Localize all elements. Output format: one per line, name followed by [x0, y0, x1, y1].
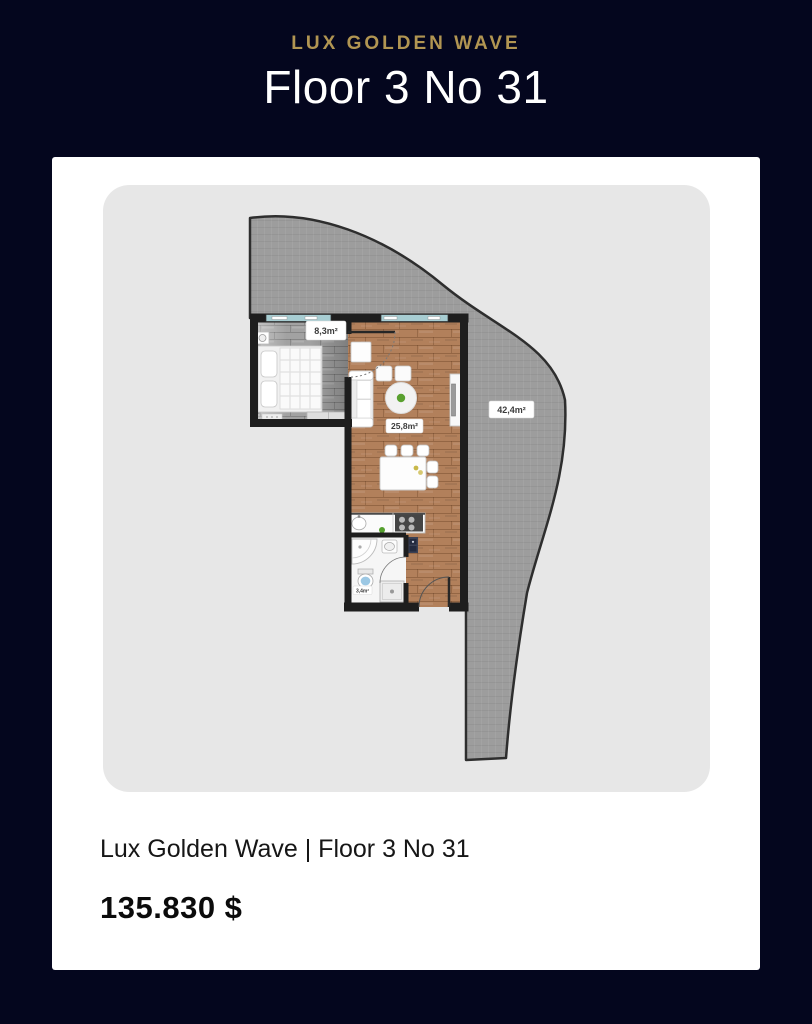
- bedroom-area-label: 8,3m²: [306, 321, 346, 340]
- svg-text:8,3m²: 8,3m²: [314, 326, 338, 336]
- listing-price: 135.830 $: [100, 890, 242, 926]
- shower-tray-icon: [380, 581, 404, 602]
- bathroom-area-label: 3,4m²: [353, 586, 372, 595]
- toilet-icon: [358, 569, 373, 588]
- svg-text:42,4m²: 42,4m²: [497, 405, 526, 415]
- listing-card: 8,3m² 25,8m² 42,4m² 3,4m² Lux Golden Wav…: [52, 157, 760, 970]
- brand-name: LUX GOLDEN WAVE: [0, 33, 812, 55]
- floorplan-container: 8,3m² 25,8m² 42,4m² 3,4m²: [103, 185, 710, 792]
- listing-caption: Lux Golden Wave | Floor 3 No 31: [100, 835, 470, 864]
- living-area-label: 25,8m²: [386, 419, 423, 433]
- sofa-icon: [349, 371, 373, 427]
- side-cabinet-icon: [351, 342, 371, 362]
- dining-table-icon: [380, 445, 438, 490]
- floorplan-image: 8,3m² 25,8m² 42,4m² 3,4m²: [103, 185, 710, 792]
- washer-icon: [408, 537, 418, 553]
- bed-icon: [256, 344, 322, 414]
- bathroom-sink-icon: [382, 540, 397, 553]
- svg-text:25,8m²: 25,8m²: [391, 421, 418, 431]
- page-title: Floor 3 No 31: [0, 60, 812, 114]
- round-rug-icon: [386, 383, 417, 414]
- page-background: { "header": { "brand": "LUX GOLDEN WAVE"…: [0, 0, 812, 1024]
- kitchen-counter-icon: [346, 513, 425, 533]
- svg-text:3,4m²: 3,4m²: [356, 589, 369, 595]
- terrace-area-label: 42,4m²: [489, 401, 534, 418]
